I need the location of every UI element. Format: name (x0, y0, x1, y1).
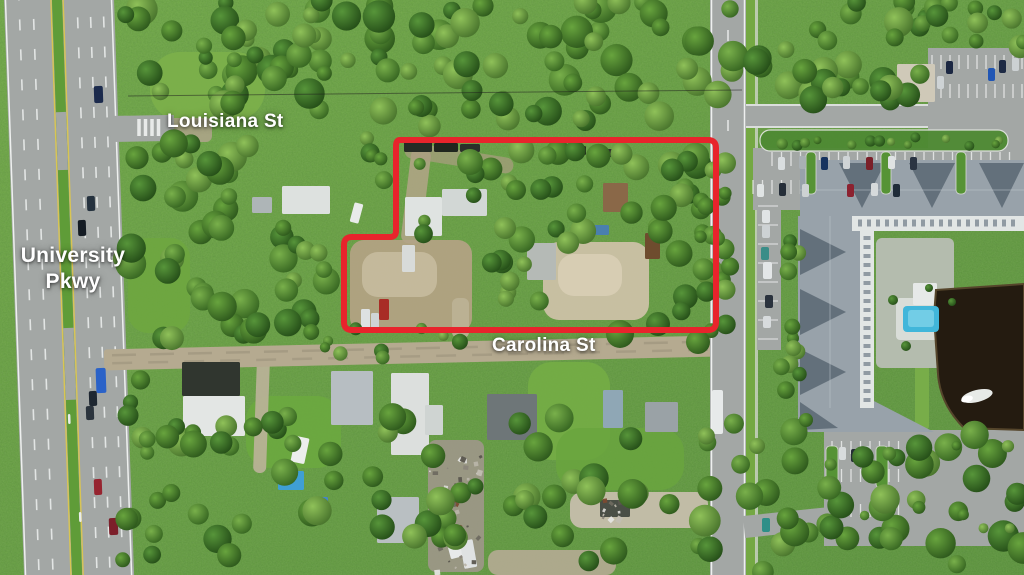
tree (332, 1, 361, 30)
tree (777, 381, 795, 399)
tree (948, 298, 956, 306)
tree (320, 342, 330, 352)
ground-patch (558, 254, 622, 296)
tree (870, 484, 899, 513)
tree (967, 13, 988, 34)
structure (645, 402, 678, 432)
parking-island (956, 152, 966, 194)
tree (618, 479, 648, 509)
tree (577, 476, 606, 505)
tree (261, 66, 286, 91)
car (946, 61, 953, 74)
tree (644, 101, 674, 131)
tree (901, 341, 911, 351)
tree (619, 427, 642, 450)
swimming-pool-shallow (908, 310, 934, 327)
car (893, 184, 900, 197)
tree (161, 20, 182, 41)
tree (530, 292, 549, 311)
scene-svg (0, 0, 1024, 575)
junk-item (602, 498, 607, 503)
tree (418, 115, 441, 138)
tree (814, 136, 822, 144)
car (763, 316, 771, 328)
tree (697, 476, 722, 501)
car (999, 60, 1006, 73)
tree (155, 258, 181, 284)
tree (545, 404, 574, 433)
tree (525, 105, 542, 122)
junk-item (467, 478, 470, 481)
tree (697, 536, 723, 562)
tree (115, 552, 130, 567)
median-crossover-north (56, 112, 68, 170)
tree (271, 459, 298, 486)
tree (910, 132, 920, 142)
tree (749, 438, 765, 454)
tree (227, 52, 242, 67)
university-pkwy-line1: University (21, 244, 126, 267)
tree (942, 135, 950, 143)
tree (731, 455, 750, 474)
tree (689, 505, 721, 537)
structure (79, 512, 82, 522)
tree (118, 405, 139, 426)
tree (652, 18, 670, 36)
tree (882, 447, 896, 461)
tree (925, 528, 955, 558)
tree (606, 320, 634, 348)
tree (115, 508, 138, 531)
tree (648, 219, 673, 244)
tree (275, 278, 298, 301)
structure (361, 309, 370, 328)
tree (207, 292, 236, 321)
structure (425, 405, 443, 435)
tree (925, 284, 933, 292)
tree (131, 370, 150, 389)
tree (318, 442, 342, 466)
car (843, 156, 850, 169)
tree (130, 175, 157, 202)
tree (874, 135, 885, 146)
car (757, 184, 764, 197)
structure (913, 283, 937, 305)
tree (887, 138, 895, 146)
tree (600, 44, 632, 76)
tree (638, 82, 660, 104)
tree (316, 261, 333, 278)
tree (579, 551, 600, 572)
tree (317, 66, 332, 81)
tree (247, 47, 264, 64)
tree (780, 263, 798, 281)
tree (162, 484, 180, 502)
car (762, 518, 770, 532)
structure (603, 390, 623, 428)
tree (1002, 440, 1014, 452)
tree (512, 8, 528, 24)
tree (539, 25, 563, 49)
tree (196, 38, 212, 54)
tree (140, 446, 154, 460)
car (847, 184, 854, 197)
tree (834, 51, 862, 79)
tree (721, 0, 738, 17)
tree (567, 204, 586, 223)
structure (402, 245, 415, 272)
tree (904, 141, 912, 149)
tree (825, 458, 837, 470)
tree (659, 494, 679, 514)
tree (452, 334, 468, 350)
junk-item (458, 477, 462, 482)
tree (942, 27, 959, 44)
tree (409, 12, 435, 38)
car (988, 68, 995, 81)
tree (530, 179, 551, 200)
tree (818, 31, 838, 51)
tree (261, 411, 284, 434)
tree (557, 232, 579, 254)
tree (139, 431, 156, 448)
car (910, 157, 917, 170)
tree (244, 417, 263, 436)
tree (294, 78, 325, 109)
tree (156, 425, 180, 449)
tree (180, 431, 207, 458)
tree (402, 524, 427, 549)
structure (434, 143, 458, 152)
tree (782, 447, 809, 474)
car (78, 220, 87, 236)
car (778, 157, 785, 170)
tree (538, 146, 556, 164)
tree (773, 358, 790, 375)
tree (426, 487, 455, 516)
tree (523, 505, 547, 529)
tree (784, 319, 800, 335)
tree (906, 435, 932, 461)
tree (303, 324, 319, 340)
car (839, 447, 846, 460)
tree (586, 144, 610, 168)
car (802, 184, 809, 197)
car (87, 196, 96, 211)
tree (232, 514, 252, 534)
car (871, 183, 878, 196)
tree (964, 141, 974, 151)
tree (450, 8, 479, 37)
structure (331, 371, 373, 425)
tree (421, 444, 445, 468)
tree (489, 92, 514, 117)
tree (208, 215, 234, 241)
tree (573, 110, 590, 127)
tree (987, 5, 1002, 20)
tree (563, 74, 582, 93)
tree (333, 346, 347, 360)
tree (245, 312, 270, 337)
tree (152, 83, 169, 100)
tree (482, 253, 502, 273)
junk-item (433, 471, 438, 475)
tree (969, 34, 984, 49)
tree (188, 504, 209, 525)
tree (666, 240, 693, 267)
tree (565, 141, 586, 162)
tree (1002, 8, 1022, 28)
tree (523, 432, 552, 461)
tree (506, 180, 526, 200)
tree (952, 441, 962, 451)
tree (611, 143, 633, 165)
tree (340, 53, 355, 68)
tree (958, 509, 969, 520)
university-pkwy-label: University Pkwy (14, 243, 132, 296)
tree (686, 330, 710, 354)
tree (509, 412, 531, 434)
tree (992, 140, 1000, 148)
tree (661, 159, 684, 182)
tree (454, 51, 480, 77)
tree (363, 0, 395, 32)
car (866, 157, 873, 170)
tree (274, 309, 302, 337)
tree (462, 80, 483, 101)
tree (221, 26, 246, 51)
tree (721, 257, 739, 275)
structure (404, 142, 432, 152)
tree (672, 302, 690, 320)
tree (467, 478, 483, 494)
tree (544, 51, 564, 71)
tree (164, 186, 186, 208)
tree (236, 135, 259, 158)
tree (483, 53, 508, 78)
tree (778, 41, 795, 58)
junk-item (618, 511, 621, 514)
tree (197, 151, 222, 176)
tree (651, 195, 677, 221)
car (765, 295, 773, 308)
tree (362, 466, 383, 487)
tree (310, 244, 327, 261)
tree (160, 326, 184, 350)
tree (457, 149, 483, 175)
tree (370, 514, 395, 539)
tree (960, 421, 988, 449)
tree (379, 403, 406, 430)
tree (117, 6, 134, 23)
tree (852, 446, 874, 468)
ground-patch (362, 252, 437, 297)
tree (792, 59, 817, 84)
tree (586, 86, 606, 106)
tree (374, 152, 387, 165)
tree (221, 188, 238, 205)
tree (979, 523, 989, 533)
tree (584, 32, 603, 51)
tree (860, 511, 870, 521)
tree (551, 524, 574, 547)
tree (676, 58, 698, 80)
tree (408, 100, 424, 116)
tree (910, 65, 929, 84)
tree (704, 81, 732, 109)
structure (252, 197, 272, 213)
tree (275, 220, 291, 236)
tree (880, 527, 903, 550)
tree (517, 257, 532, 272)
car (94, 479, 103, 495)
tree (576, 175, 593, 192)
tree (376, 351, 390, 365)
tree (785, 340, 801, 356)
tree (400, 63, 417, 80)
tree (716, 315, 736, 335)
tree (799, 413, 813, 427)
tree (820, 516, 844, 540)
car (712, 390, 723, 434)
structure (282, 186, 330, 214)
car (94, 86, 104, 103)
car (761, 247, 769, 260)
tree (498, 291, 514, 307)
university-pkwy-line2: Pkwy (46, 270, 101, 293)
tree (852, 78, 869, 95)
tree (370, 97, 398, 125)
car (821, 157, 828, 170)
tree (376, 58, 400, 82)
tree (780, 243, 797, 260)
tree (886, 28, 904, 46)
tree (912, 501, 925, 514)
tree (414, 158, 426, 170)
tree (1005, 523, 1015, 533)
car (1012, 58, 1019, 71)
tree (494, 217, 516, 239)
tree (693, 258, 715, 280)
tree (360, 131, 374, 145)
tree (800, 138, 810, 148)
tree (125, 146, 148, 169)
tree (160, 129, 188, 157)
car (762, 225, 770, 238)
tree (466, 187, 482, 203)
retention-pond (934, 284, 1024, 430)
car (799, 156, 806, 169)
structure (68, 414, 71, 424)
junk-item (463, 465, 469, 470)
tree (926, 5, 948, 27)
tree (292, 23, 316, 47)
tree (620, 201, 642, 223)
car (779, 183, 786, 196)
tree (697, 198, 715, 216)
car (762, 210, 770, 223)
tree (685, 26, 714, 55)
tree (870, 80, 891, 101)
tree (375, 171, 393, 189)
tree (724, 414, 744, 434)
tree (963, 465, 991, 493)
junk-item (473, 461, 478, 466)
tree (736, 483, 763, 510)
structure (379, 299, 389, 320)
tree (777, 138, 788, 149)
tree (284, 435, 301, 452)
car (937, 76, 944, 89)
tree (600, 537, 627, 564)
tree (500, 272, 519, 291)
car (763, 262, 772, 279)
tree (143, 546, 161, 564)
tree (847, 140, 856, 149)
tree (414, 224, 433, 243)
tree (444, 524, 466, 546)
tree (303, 496, 332, 525)
tree (145, 525, 163, 543)
tree (777, 507, 799, 529)
tree (743, 48, 770, 75)
tree (137, 60, 163, 86)
car (86, 406, 94, 420)
tree (371, 490, 391, 510)
tree (210, 431, 233, 454)
tree (822, 77, 843, 98)
carolina-st-label: Carolina St (492, 335, 596, 357)
junk-item (472, 560, 477, 564)
tree (217, 543, 241, 567)
car (888, 156, 895, 169)
tree (542, 485, 566, 509)
tree (698, 428, 715, 445)
car (89, 391, 98, 406)
junk-item (434, 570, 440, 575)
tree (948, 555, 966, 573)
tree (888, 295, 898, 305)
structure (182, 362, 240, 396)
louisiana-st-label: Louisiana St (167, 111, 284, 133)
tree (694, 231, 706, 243)
tree (817, 476, 841, 500)
aerial-photo: Louisiana St University Pkwy Carolina St (0, 0, 1024, 575)
tree (324, 471, 343, 490)
tree (719, 187, 732, 200)
car (96, 368, 107, 393)
tree (718, 41, 748, 71)
tree (265, 2, 290, 27)
tree (792, 367, 806, 381)
tree (461, 99, 481, 119)
